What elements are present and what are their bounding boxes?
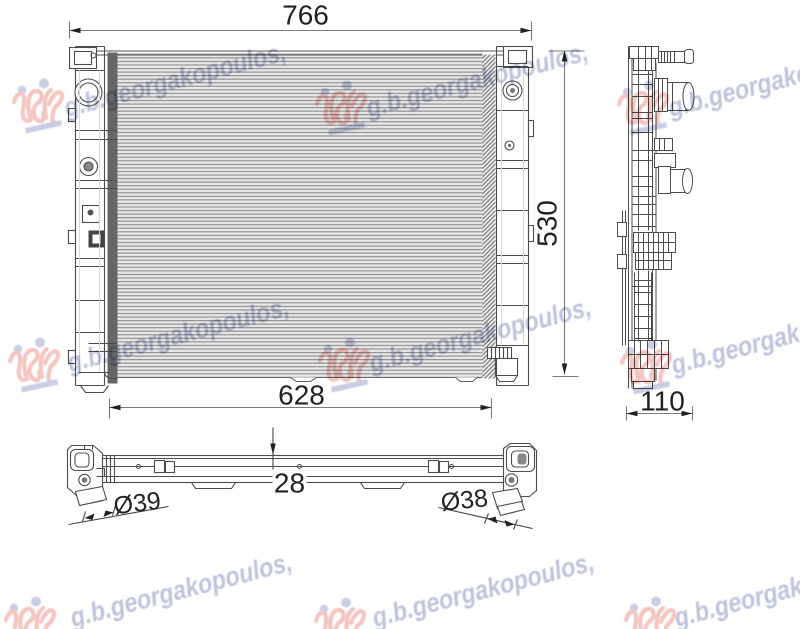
svg-text:Ø38: Ø38: [439, 484, 489, 517]
svg-text:28: 28: [274, 468, 305, 499]
svg-text:628: 628: [278, 380, 325, 411]
svg-text:530: 530: [532, 200, 563, 247]
svg-text:766: 766: [282, 0, 329, 31]
svg-text:Ø39: Ø39: [112, 487, 162, 521]
